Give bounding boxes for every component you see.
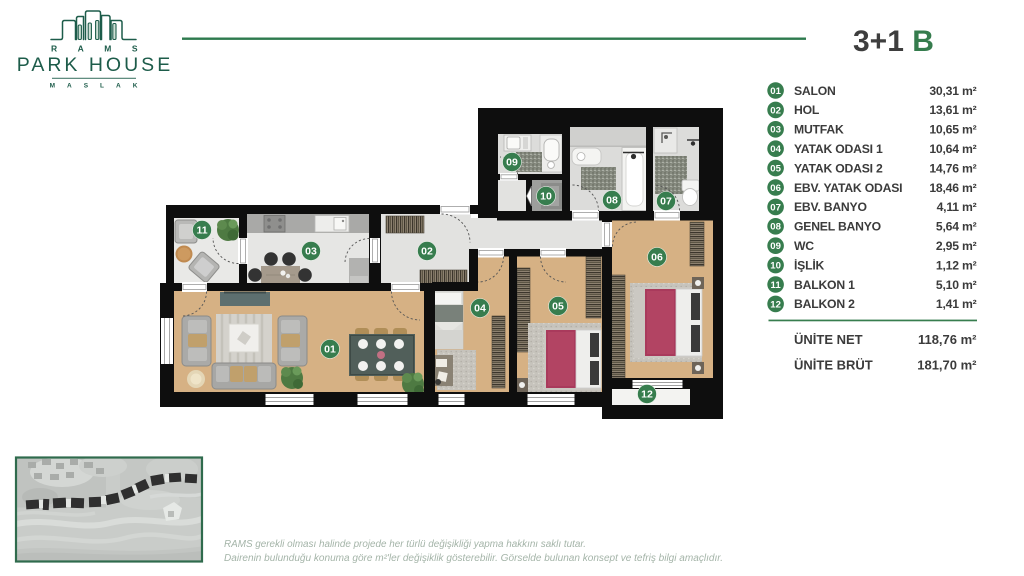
svg-text:03: 03 (305, 246, 317, 258)
svg-text:01: 01 (324, 344, 336, 356)
svg-text:4,11 m²: 4,11 m² (937, 200, 977, 214)
svg-text:08: 08 (606, 195, 618, 207)
svg-text:İŞLİK: İŞLİK (794, 257, 825, 272)
svg-text:EBV. BANYO: EBV. BANYO (794, 200, 867, 214)
svg-text:PARK HOUSE: PARK HOUSE (17, 54, 173, 76)
svg-text:30,31 m²: 30,31 m² (929, 84, 976, 98)
svg-text:05: 05 (770, 164, 781, 175)
svg-text:04: 04 (770, 144, 781, 155)
svg-text:HOL: HOL (794, 103, 820, 117)
svg-text:1,41 m²: 1,41 m² (936, 297, 977, 311)
svg-text:Dairenin bulunduğu konuma göre: Dairenin bulunduğu konuma göre m²'ler de… (224, 553, 723, 564)
svg-text:06: 06 (651, 252, 663, 264)
svg-text:EBV. YATAK ODASI: EBV. YATAK ODASI (794, 181, 902, 195)
svg-text:RAMS gerekli olması halinde pr: RAMS gerekli olması halinde projede her … (224, 539, 586, 550)
svg-text:3+1 B: 3+1 B (853, 25, 934, 58)
svg-text:MASLAK: MASLAK (50, 83, 150, 90)
svg-text:1,12 m²: 1,12 m² (936, 258, 977, 272)
svg-text:07: 07 (660, 196, 672, 208)
svg-text:10,64 m²: 10,64 m² (929, 142, 976, 156)
svg-text:181,70 m²: 181,70 m² (917, 358, 977, 373)
svg-text:18,46 m²: 18,46 m² (929, 181, 976, 195)
svg-text:06: 06 (770, 183, 781, 194)
svg-text:ÜNİTE BRÜT: ÜNİTE BRÜT (794, 358, 873, 373)
svg-text:05: 05 (552, 301, 564, 313)
svg-text:BALKON 2: BALKON 2 (794, 297, 855, 311)
svg-text:SALON: SALON (794, 84, 836, 98)
svg-text:04: 04 (474, 303, 486, 315)
svg-text:2,95 m²: 2,95 m² (936, 239, 977, 253)
svg-text:YATAK ODASI 1: YATAK ODASI 1 (794, 142, 883, 156)
svg-text:12: 12 (770, 299, 781, 310)
svg-text:GENEL BANYO: GENEL BANYO (794, 220, 881, 234)
svg-text:02: 02 (421, 246, 433, 258)
svg-text:5,64 m²: 5,64 m² (936, 220, 977, 234)
svg-text:11: 11 (771, 280, 782, 291)
svg-text:118,76 m²: 118,76 m² (918, 332, 977, 347)
svg-text:12: 12 (641, 389, 653, 401)
svg-text:BALKON 1: BALKON 1 (794, 278, 855, 292)
svg-text:10: 10 (540, 191, 552, 203)
svg-text:RAMS: RAMS (51, 44, 158, 54)
svg-text:YATAK ODASI 2: YATAK ODASI 2 (794, 161, 883, 175)
svg-text:10,65 m²: 10,65 m² (929, 123, 976, 137)
svg-text:01: 01 (770, 86, 781, 97)
svg-text:13,61 m²: 13,61 m² (929, 103, 976, 117)
svg-text:WC: WC (794, 239, 814, 253)
svg-text:11: 11 (196, 225, 207, 237)
svg-text:07: 07 (770, 202, 781, 213)
svg-text:03: 03 (770, 125, 781, 136)
svg-text:5,10 m²: 5,10 m² (936, 278, 977, 292)
svg-text:ÜNİTE NET: ÜNİTE NET (794, 332, 863, 347)
svg-text:14,76 m²: 14,76 m² (929, 161, 976, 175)
svg-text:10: 10 (770, 261, 781, 272)
svg-text:09: 09 (770, 241, 781, 252)
svg-text:08: 08 (770, 222, 781, 233)
svg-text:09: 09 (506, 157, 518, 169)
svg-text:MUTFAK: MUTFAK (794, 123, 844, 137)
svg-text:02: 02 (770, 105, 781, 116)
